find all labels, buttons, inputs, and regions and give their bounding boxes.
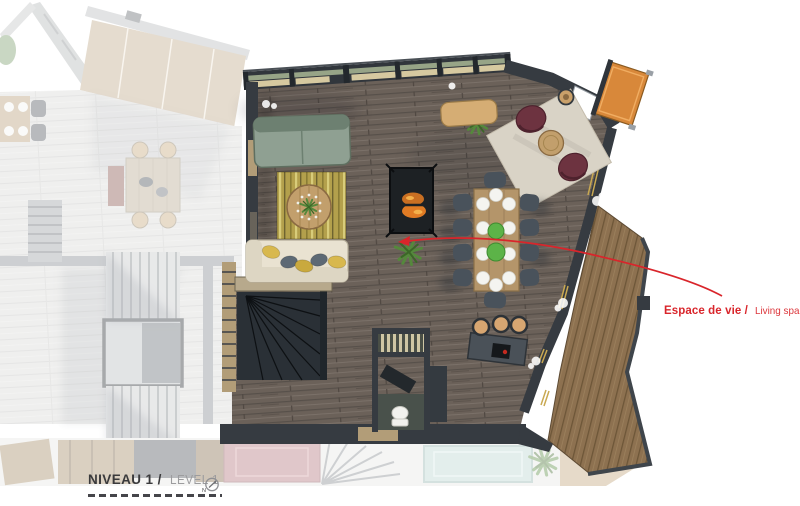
- stair-wall-wood: [222, 262, 236, 392]
- floor-plan-page: Espace de vie / Living space NIVEAU 1 / …: [0, 0, 800, 506]
- faded-staircase: [104, 252, 182, 444]
- fireplace: [386, 164, 437, 237]
- round-coffee-table: [287, 185, 331, 229]
- annotation-label-en: Living space: [755, 305, 800, 317]
- bar-stools: [473, 316, 527, 335]
- winder-staircase: [235, 277, 332, 380]
- window-bench: [440, 99, 498, 127]
- north-letter: N: [202, 488, 206, 494]
- faded-cabinet: [108, 166, 124, 206]
- annotation-label-fr: Espace de vie /: [664, 305, 748, 317]
- cooktop: [491, 343, 511, 359]
- living-space-annotation: Espace de vie / Living space: [664, 301, 800, 319]
- corner-sofa-cream: [246, 240, 348, 282]
- centerpiece-2: [487, 243, 505, 261]
- side-table: [539, 131, 564, 156]
- toilet: [392, 407, 408, 427]
- slatted-mat: [378, 334, 424, 352]
- centerpiece-1: [488, 223, 504, 239]
- north-arrow-icon: N: [200, 476, 222, 496]
- floor-plan-rendering: [0, 0, 800, 506]
- faded-ladder: [28, 200, 62, 262]
- green-sofa: [253, 114, 351, 167]
- deck-step: [637, 296, 650, 310]
- level-title-fr: NIVEAU 1 /: [88, 472, 162, 487]
